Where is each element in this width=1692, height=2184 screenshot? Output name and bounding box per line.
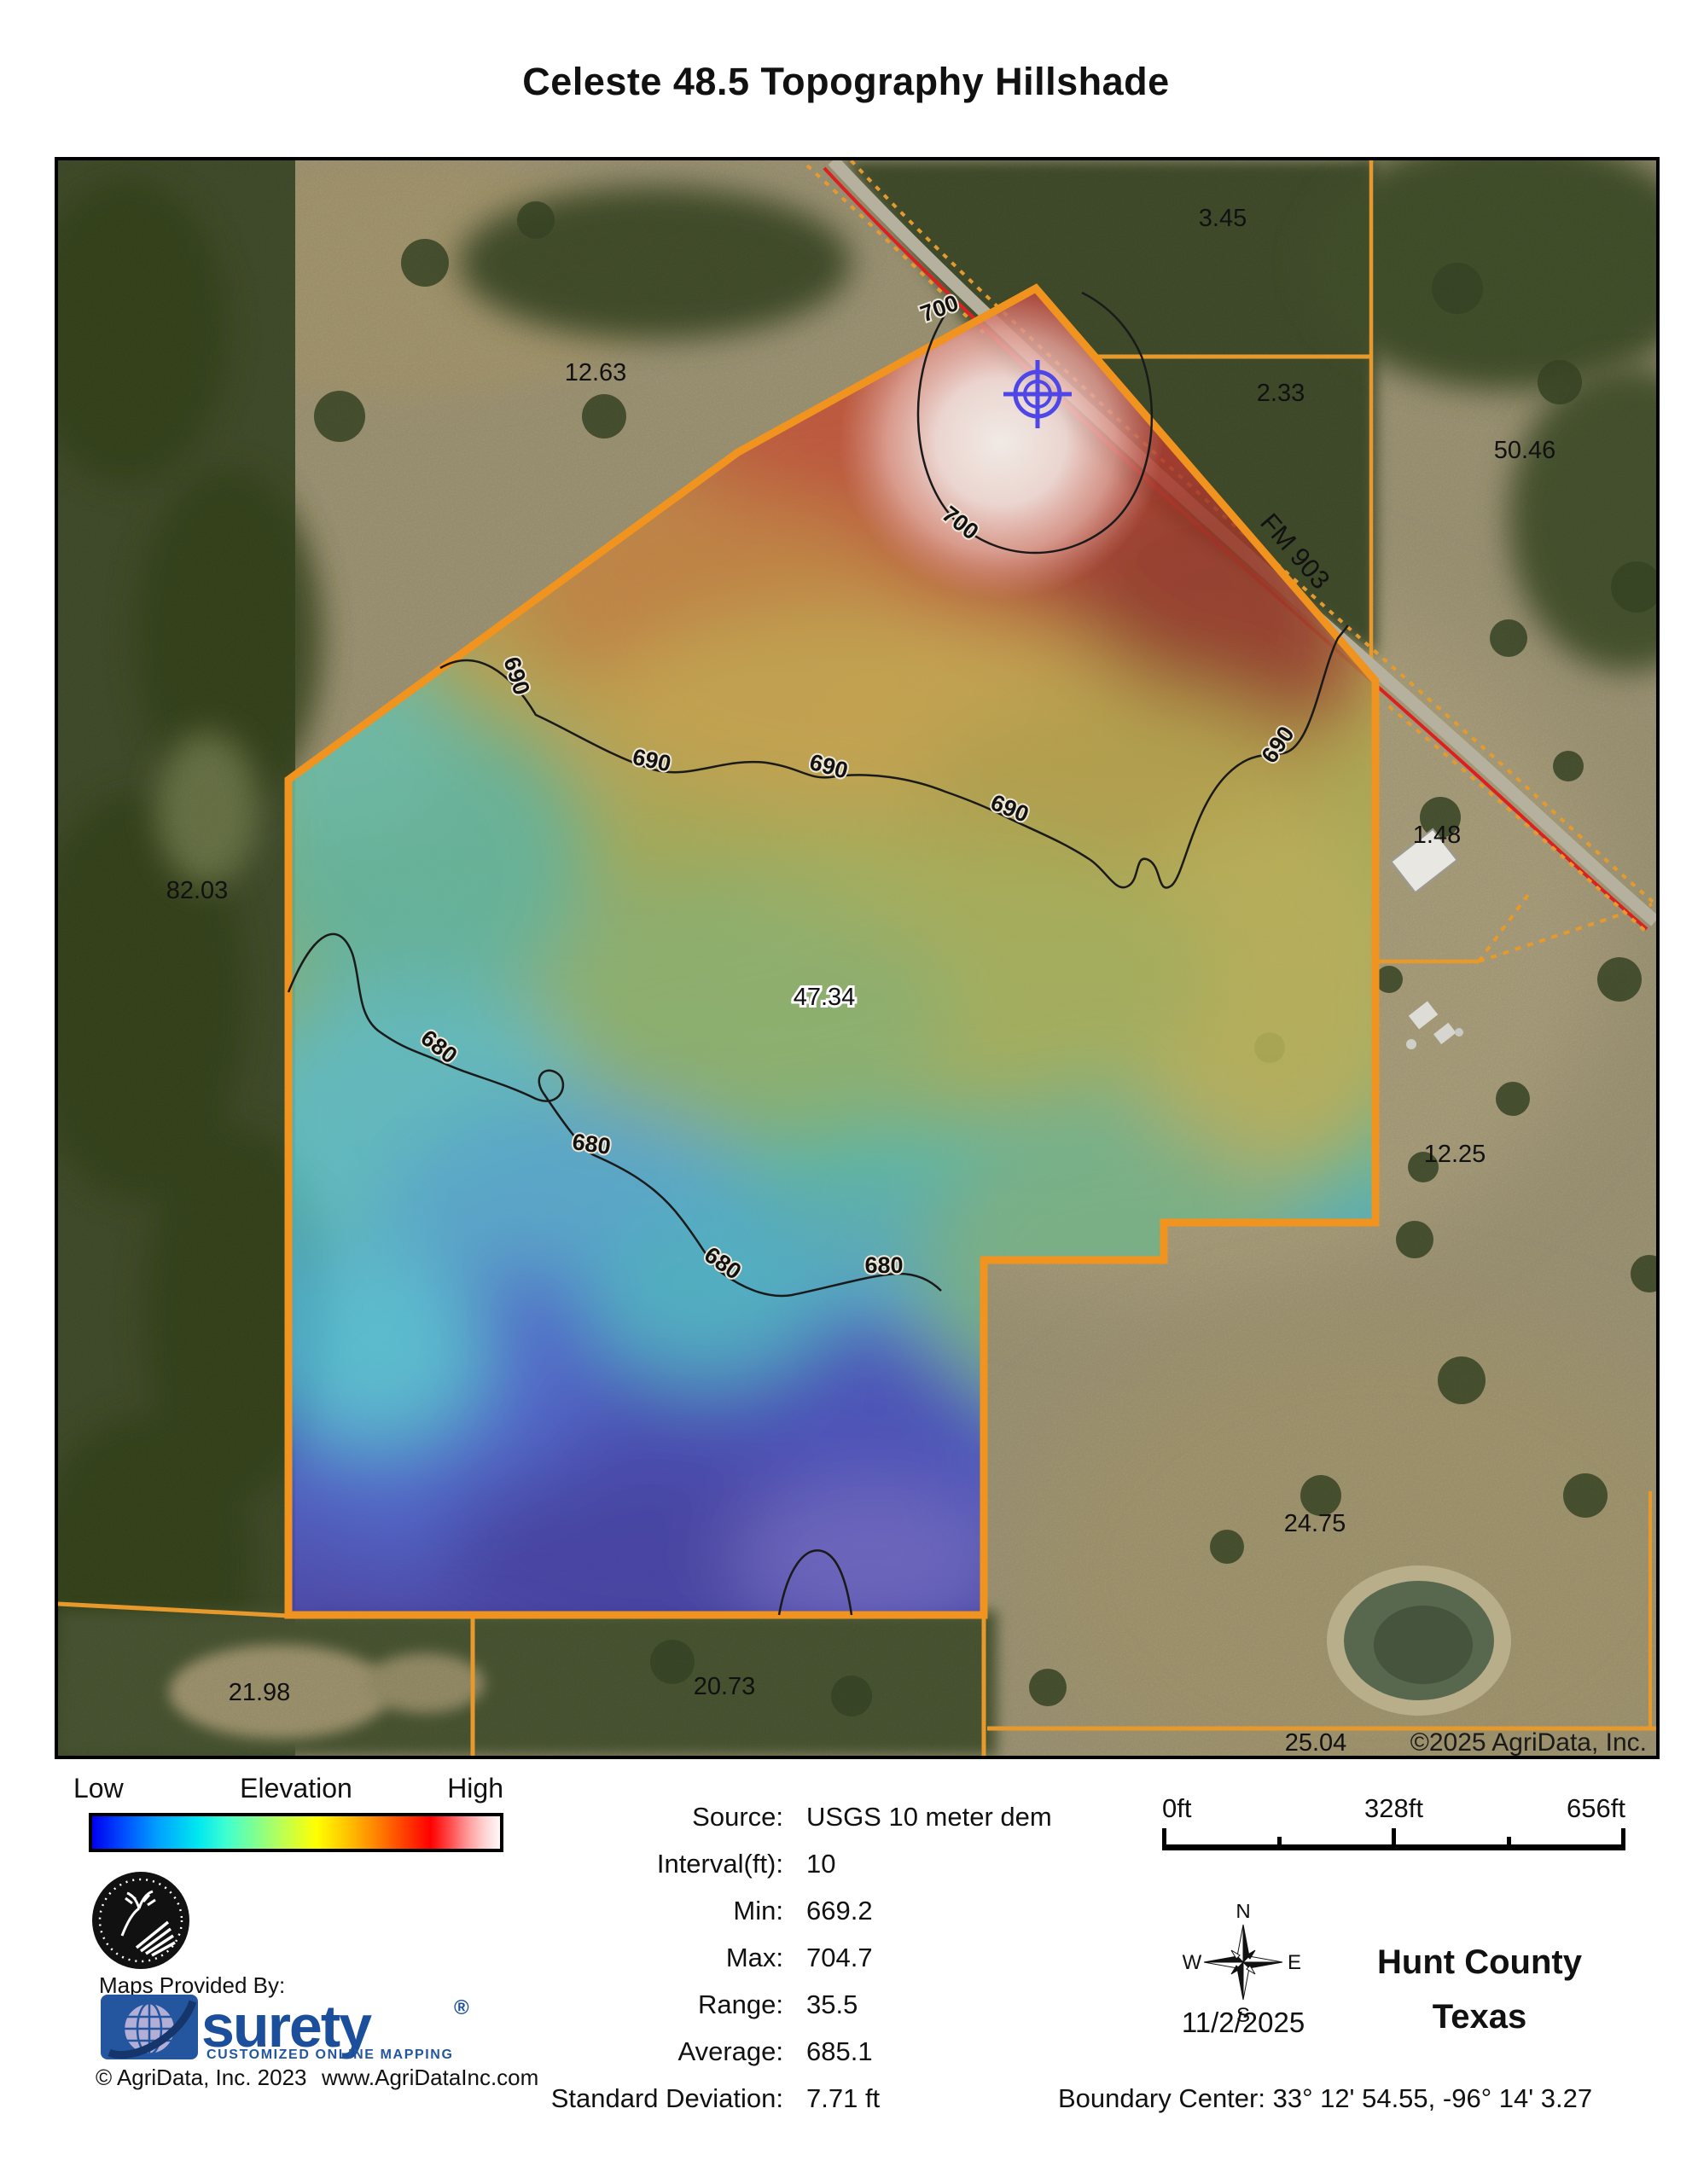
parcel-label: 24.75 bbox=[1284, 1510, 1346, 1537]
deer-logo bbox=[90, 1869, 192, 1972]
contour-label-680: 680 bbox=[864, 1252, 903, 1278]
stat-label: Source: bbox=[358, 1802, 783, 1833]
contour-label-680: 680 bbox=[571, 1129, 613, 1159]
parcel-label: 12.25 bbox=[1424, 1141, 1486, 1168]
parcel-label: 12.63 bbox=[565, 359, 627, 386]
scalebar-tick bbox=[1621, 1828, 1625, 1850]
scalebar-label-656: 656ft bbox=[1162, 1793, 1625, 1824]
stat-label: Range: bbox=[358, 1989, 783, 2020]
parcel-label: 82.03 bbox=[166, 877, 229, 904]
parcel-label: 47.34 bbox=[794, 984, 856, 1011]
state-name: Texas bbox=[1309, 1998, 1650, 2036]
compass-e: E bbox=[1288, 1951, 1301, 1974]
legend-high-label: High bbox=[89, 1773, 503, 1804]
agridata-copyright: © AgriData, Inc. 2023 bbox=[96, 2065, 307, 2091]
page-title: Celeste 48.5 Topography Hillshade bbox=[0, 60, 1692, 104]
stat-value: 704.7 bbox=[806, 1943, 1173, 1973]
boundary-center-coordinates: Boundary Center: 33° 12' 54.55, -96° 14'… bbox=[1058, 2083, 1692, 2114]
pond bbox=[1327, 1565, 1511, 1716]
parcel-label: 21.98 bbox=[229, 1679, 291, 1706]
stat-value: 685.1 bbox=[806, 2036, 1173, 2067]
surety-globe-logo bbox=[101, 1995, 198, 2059]
compass-n: N bbox=[1236, 1904, 1250, 1923]
map-canvas: 700 700 690 690 690 690 690 680 680 680 … bbox=[55, 157, 1660, 1759]
stat-label: Max: bbox=[358, 1943, 783, 1973]
parcel-label: 20.73 bbox=[694, 1673, 756, 1700]
stat-label: Interval(ft): bbox=[358, 1849, 783, 1879]
county-name: Hunt County bbox=[1309, 1943, 1650, 1982]
registered-mark: ® bbox=[454, 1996, 469, 2020]
map-svg: 700 700 690 690 690 690 690 680 680 680 … bbox=[58, 160, 1656, 1756]
parcel-label: 25.04 bbox=[1285, 1729, 1347, 1756]
surety-tagline: CUSTOMIZED ONLINE MAPPING bbox=[206, 2047, 454, 2063]
compass-w: W bbox=[1183, 1951, 1202, 1974]
parcel-label: 2.33 bbox=[1257, 380, 1305, 407]
scalebar-tick bbox=[1507, 1837, 1511, 1850]
parcel-label: 1.48 bbox=[1413, 822, 1461, 849]
stat-value: 669.2 bbox=[806, 1896, 1173, 1926]
scalebar-tick bbox=[1392, 1828, 1396, 1850]
stat-value: 10 bbox=[806, 1849, 1173, 1879]
agridata-website: www.AgriDataInc.com bbox=[322, 2065, 538, 2091]
parcel-label: 3.45 bbox=[1199, 205, 1247, 232]
map-copyright: ©2025 AgriData, Inc. bbox=[1410, 1728, 1647, 1756]
stat-value: USGS 10 meter dem bbox=[806, 1802, 1173, 1833]
stat-label: Min: bbox=[358, 1896, 783, 1926]
parcel-label: 50.46 bbox=[1494, 437, 1556, 464]
scalebar-tick bbox=[1162, 1828, 1166, 1850]
scalebar-tick bbox=[1277, 1837, 1282, 1850]
